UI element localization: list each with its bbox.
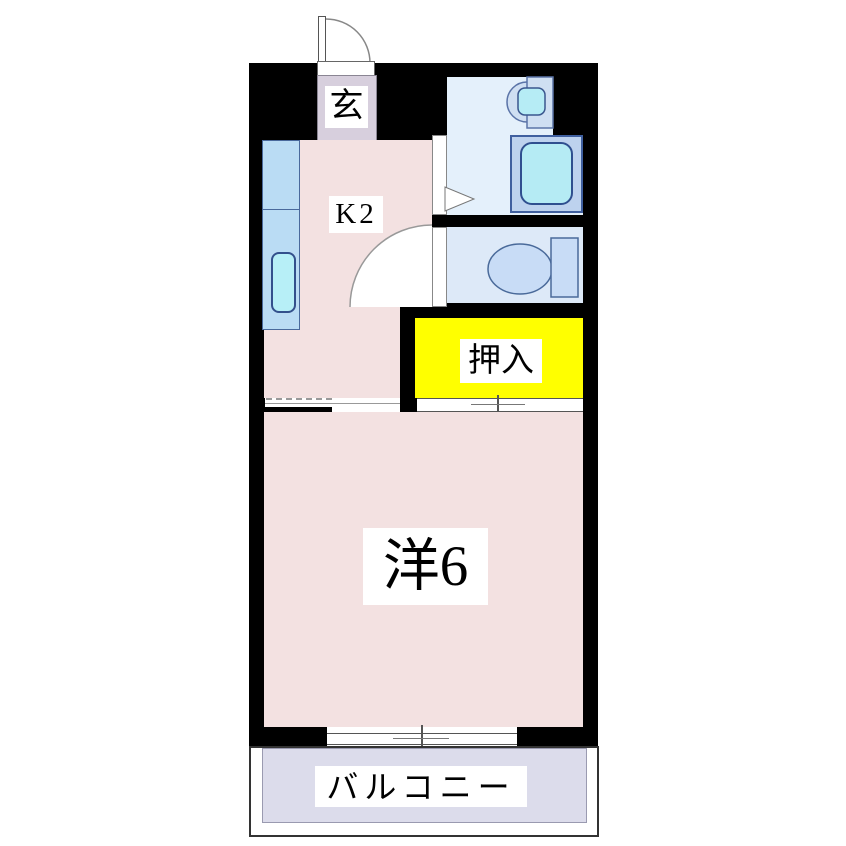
divider-dashed-line <box>266 398 332 401</box>
bathtub-unit <box>510 135 583 213</box>
balcony-window-icon <box>327 727 517 746</box>
toilet-door-leaf <box>432 227 447 307</box>
counter-divider-line <box>263 209 299 210</box>
washbasin-icon <box>503 75 555 131</box>
kitchen-label: K2 <box>329 196 383 233</box>
kitchen-counter <box>262 140 300 330</box>
floor-plan: 玄 K2 押入 洋6 バルコニー <box>0 0 846 846</box>
entrance-label: 玄 <box>325 86 368 128</box>
toilet-door-arc-icon <box>348 223 434 309</box>
closet-label: 押入 <box>460 339 542 383</box>
toilet-icon <box>480 232 584 302</box>
kitchen-sink-icon <box>271 252 296 313</box>
sliding-door-midline <box>471 404 525 405</box>
bathtub-icon <box>520 142 573 205</box>
divider-line <box>265 403 400 404</box>
closet-sliding-doors <box>417 398 583 412</box>
entrance-door-arc-icon <box>322 15 372 65</box>
window-tick <box>421 725 423 748</box>
window-midline <box>393 738 449 739</box>
kitchen-room-divider <box>265 398 400 412</box>
western-room-label: 洋6 <box>363 528 488 605</box>
balcony-label: バルコニー <box>315 766 527 807</box>
washroom-door-swing-icon <box>444 186 476 214</box>
